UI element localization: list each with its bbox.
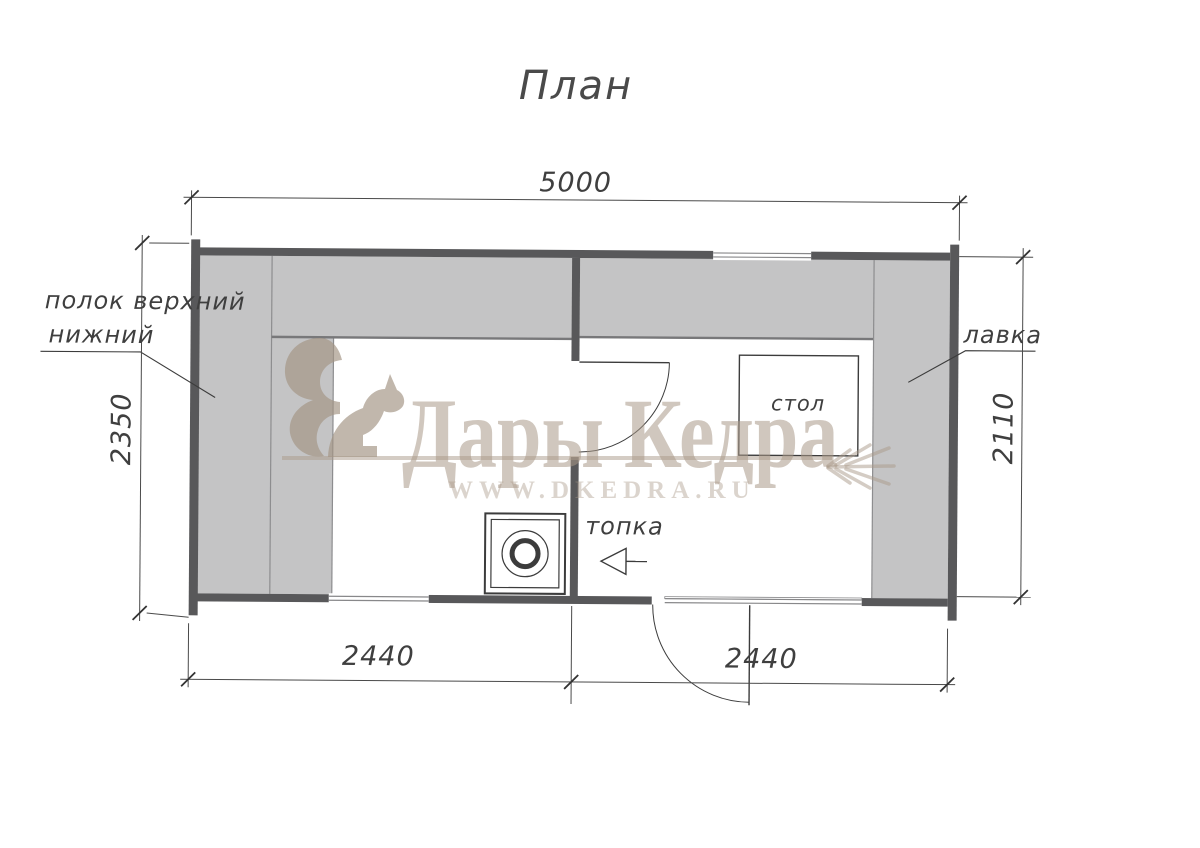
shelf-upper-label: полок верхний bbox=[45, 286, 246, 315]
watermark-brand-text: Дары Кедра bbox=[402, 384, 838, 484]
partition-door-leaf bbox=[579, 362, 669, 363]
shelf-leader-line bbox=[40, 351, 215, 397]
branch-stem bbox=[828, 466, 894, 467]
dim-right-value: 2110 bbox=[988, 392, 1020, 465]
dim-bottom-left-value: 2440 bbox=[342, 641, 415, 673]
firebox-label: топка bbox=[585, 512, 664, 541]
dim-ext bbox=[571, 606, 572, 704]
firebox-arrow-head bbox=[601, 548, 626, 574]
cedar-branch-icon bbox=[788, 440, 898, 494]
stove-ring bbox=[512, 541, 538, 567]
top-window-glass-line bbox=[713, 257, 811, 258]
bottom-left-window-glass-line bbox=[329, 596, 429, 597]
firebox-arrow bbox=[601, 548, 647, 574]
bottom-left-window bbox=[329, 593, 429, 604]
dim-line-right bbox=[1021, 248, 1023, 605]
top-window-glass-line bbox=[713, 253, 811, 254]
dim-bottom-right-value: 2440 bbox=[725, 644, 798, 676]
top-window bbox=[713, 250, 811, 261]
stove-symbol bbox=[485, 513, 566, 594]
dim-ext bbox=[147, 613, 189, 617]
steam-room-top-shelf-band bbox=[199, 255, 574, 340]
dim-left-value: 2350 bbox=[106, 392, 138, 465]
shelf-lower-label: нижний bbox=[48, 320, 154, 349]
bench-block bbox=[872, 260, 950, 599]
dim-line-bottom bbox=[180, 679, 955, 684]
dim-top-value: 5000 bbox=[539, 167, 612, 199]
bench-label: лавка bbox=[964, 321, 1043, 350]
watermark-website-text: WWW.DKEDRA.RU bbox=[448, 478, 756, 503]
bottom-left-window-glass-line bbox=[329, 600, 429, 601]
rest-room-top-shelf-band bbox=[580, 258, 875, 340]
squirrel-body bbox=[328, 374, 404, 457]
floor-plan-page: 5000 2350 2110 2440 2440 полок верхний н… bbox=[0, 0, 1200, 848]
squirrel-logo-icon bbox=[276, 336, 406, 462]
page-title: План bbox=[519, 63, 633, 109]
